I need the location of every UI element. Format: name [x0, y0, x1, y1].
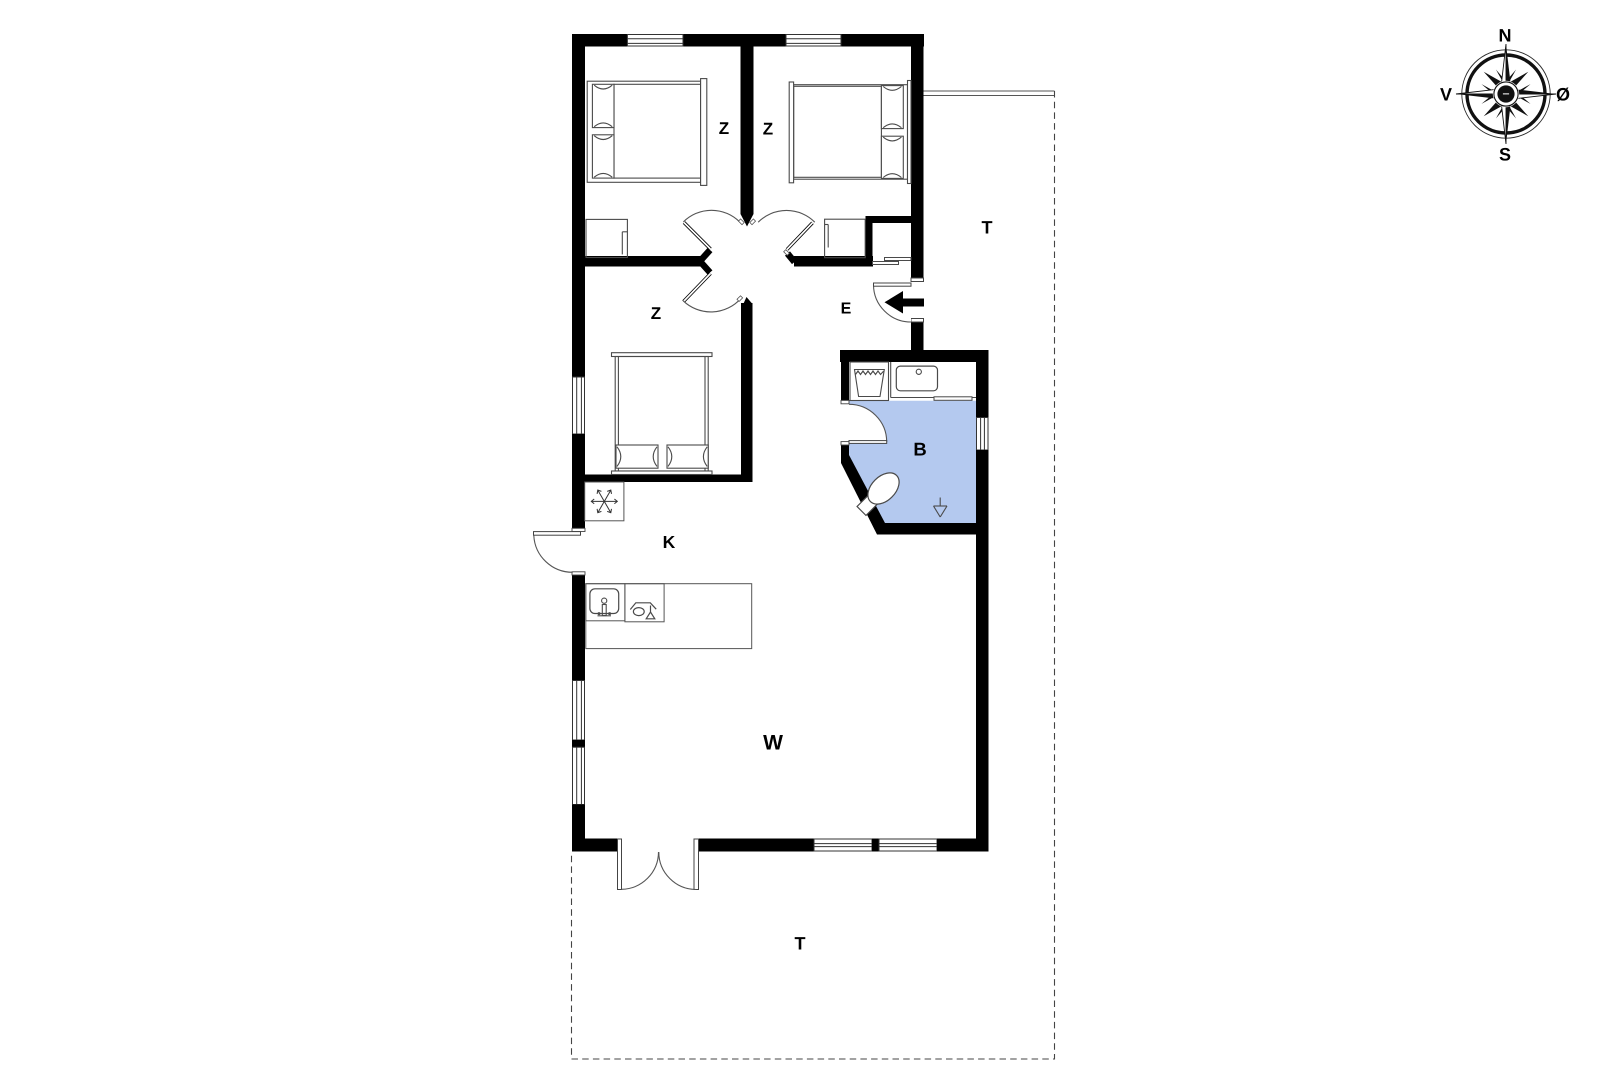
svg-text:Ø: Ø: [1556, 85, 1570, 105]
svg-text:S: S: [1499, 145, 1511, 165]
svg-text:E: E: [841, 301, 852, 318]
svg-text:T: T: [795, 934, 806, 954]
svg-text:K: K: [663, 532, 676, 552]
svg-text:N: N: [1499, 26, 1512, 46]
svg-text:B: B: [913, 439, 926, 460]
svg-text:Z: Z: [763, 120, 773, 139]
svg-text:Z: Z: [651, 304, 661, 323]
svg-text:V: V: [1440, 85, 1452, 105]
svg-text:T: T: [982, 218, 993, 238]
svg-text:Z: Z: [719, 119, 729, 138]
svg-text:W: W: [763, 732, 783, 755]
